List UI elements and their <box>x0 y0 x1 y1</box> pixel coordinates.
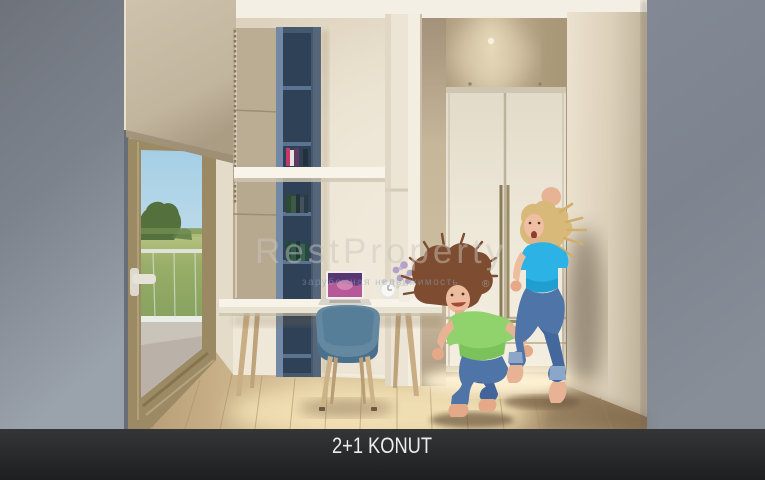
svg-text:RestProperty: RestProperty <box>255 232 507 271</box>
svg-text:зарубежная недвижимость: зарубежная недвижимость <box>302 276 459 288</box>
svg-text:®: ® <box>482 279 490 290</box>
svg-text:2+1 KONUT: 2+1 KONUT <box>332 433 432 458</box>
